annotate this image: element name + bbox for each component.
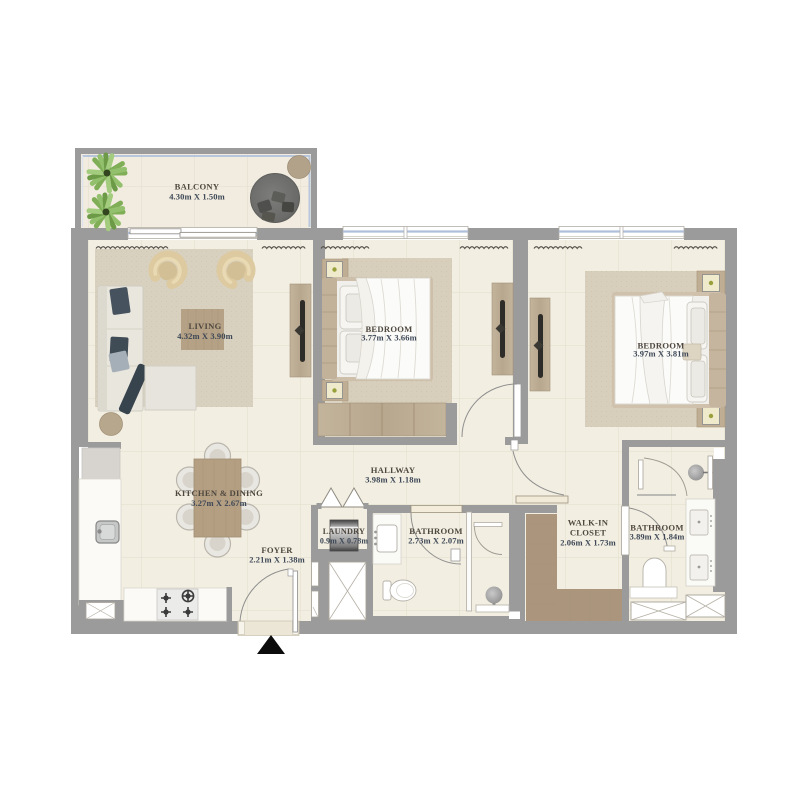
svg-text:CLOSET: CLOSET — [570, 528, 606, 538]
svg-text:3.98m X 1.18m: 3.98m X 1.18m — [365, 475, 421, 485]
svg-text:LIVING: LIVING — [188, 321, 221, 331]
svg-text:3.97m X 3.81m: 3.97m X 3.81m — [633, 349, 689, 359]
svg-text:BALCONY: BALCONY — [175, 182, 220, 192]
svg-text:2.21m X 1.38m: 2.21m X 1.38m — [249, 555, 305, 565]
svg-text:LAUNDRY: LAUNDRY — [323, 527, 365, 536]
svg-text:3.27m X 2.67m: 3.27m X 2.67m — [191, 498, 247, 508]
svg-text:4.30m X 1.50m: 4.30m X 1.50m — [169, 192, 225, 202]
svg-text:BATHROOM: BATHROOM — [630, 523, 683, 533]
svg-text:WALK-IN: WALK-IN — [568, 518, 609, 528]
svg-text:2.06m X 1.73m: 2.06m X 1.73m — [560, 538, 616, 548]
svg-text:0.9m X 0.78m: 0.9m X 0.78m — [320, 537, 369, 546]
svg-text:BATHROOM: BATHROOM — [409, 526, 462, 536]
svg-text:FOYER: FOYER — [261, 545, 293, 555]
svg-text:4.32m X 3.90m: 4.32m X 3.90m — [177, 331, 233, 341]
svg-text:3.77m X 3.66m: 3.77m X 3.66m — [361, 333, 417, 343]
svg-text:3.89m X 1.84m: 3.89m X 1.84m — [630, 533, 685, 542]
svg-text:KITCHEN & DINING: KITCHEN & DINING — [175, 488, 263, 498]
svg-text:HALLWAY: HALLWAY — [371, 465, 416, 475]
svg-text:2.73m X 2.07m: 2.73m X 2.07m — [408, 536, 464, 546]
